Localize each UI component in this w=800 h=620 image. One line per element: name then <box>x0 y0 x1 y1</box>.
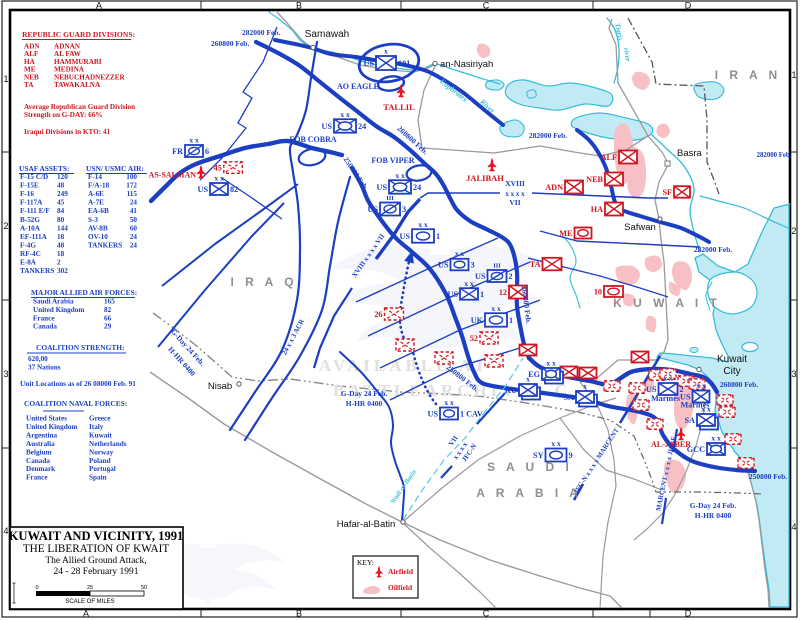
svg-text:x x: x x <box>395 171 405 180</box>
svg-text:249: 249 <box>57 190 68 198</box>
svg-text:282000 Feb.: 282000 Feb. <box>757 152 792 159</box>
svg-text:City: City <box>723 366 740 377</box>
svg-text:x x: x x <box>444 398 454 407</box>
svg-text:Strength on G-DAY: 66%: Strength on G-DAY: 66% <box>24 111 103 119</box>
svg-text:UK: UK <box>471 316 484 325</box>
svg-text:Hafar-al-Batin: Hafar-al-Batin <box>337 519 396 530</box>
svg-text:USAF ASSETS:: USAF ASSETS: <box>19 164 69 173</box>
svg-text:Spain: Spain <box>89 474 107 482</box>
svg-text:A R A B I A: A R A B I A <box>476 486 582 500</box>
svg-text:C: C <box>483 1 490 11</box>
svg-text:EF-111A: EF-111A <box>20 233 48 241</box>
svg-text:x x: x x <box>418 220 428 229</box>
svg-text:SCALE OF MILES: SCALE OF MILES <box>65 599 114 605</box>
svg-text:ADN: ADN <box>545 183 563 192</box>
svg-text:2: 2 <box>791 226 796 236</box>
svg-text:3: 3 <box>3 369 8 379</box>
svg-text:USN/ USMC AIR:: USN/ USMC AIR: <box>86 164 144 173</box>
svg-text:x x: x x <box>663 374 673 383</box>
svg-text:MAJOR ALLIED AIR FORCES:: MAJOR ALLIED AIR FORCES: <box>31 288 137 297</box>
svg-text:24: 24 <box>130 233 138 241</box>
svg-text:Argentina: Argentina <box>26 431 58 439</box>
svg-text:AS-SALMAN: AS-SALMAN <box>148 171 196 180</box>
svg-text:III: III <box>493 263 501 270</box>
svg-text:250800 Feb.: 250800 Feb. <box>749 472 787 481</box>
svg-text:66: 66 <box>104 314 112 322</box>
svg-text:1: 1 <box>480 290 484 299</box>
svg-text:24: 24 <box>130 199 138 207</box>
svg-text:ALF: ALF <box>601 153 617 162</box>
svg-text:0: 0 <box>35 585 38 591</box>
svg-text:FR: FR <box>172 147 183 156</box>
svg-text:50: 50 <box>130 216 138 224</box>
svg-text:260800 Feb.: 260800 Feb. <box>211 39 249 48</box>
svg-text:KU: KU <box>505 386 517 395</box>
svg-text:2: 2 <box>3 221 8 231</box>
svg-text:Samawah: Samawah <box>305 29 349 40</box>
svg-text:United Kingdom: United Kingdom <box>26 423 77 431</box>
svg-text:US: US <box>448 290 459 299</box>
svg-text:Canada: Canada <box>26 457 50 465</box>
svg-text:50: 50 <box>141 585 147 591</box>
svg-text:12: 12 <box>499 288 507 297</box>
svg-text:302: 302 <box>57 267 68 275</box>
svg-text:TANKERS: TANKERS <box>20 267 54 275</box>
svg-text:TA: TA <box>24 81 34 89</box>
svg-text:TA: TA <box>530 260 541 269</box>
svg-text:Kuwait: Kuwait <box>717 354 747 365</box>
svg-text:Greece: Greece <box>89 415 110 423</box>
svg-text:24 - 28 February 1991: 24 - 28 February 1991 <box>54 567 139 577</box>
svg-text:1: 1 <box>791 70 796 80</box>
svg-text:XVIII: XVIII <box>505 179 525 188</box>
svg-text:x: x <box>384 48 388 56</box>
svg-text:101: 101 <box>398 59 410 68</box>
svg-text:RF-4C: RF-4C <box>20 250 41 258</box>
svg-text:x x: x x <box>696 381 706 390</box>
svg-text:Basra: Basra <box>677 148 703 159</box>
svg-text:26: 26 <box>374 310 382 319</box>
svg-text:45: 45 <box>57 199 65 207</box>
svg-text:TAWAKALNA: TAWAKALNA <box>54 81 101 89</box>
svg-text:172: 172 <box>126 182 137 190</box>
svg-text:x x: x x <box>214 174 224 183</box>
svg-text:Unit Locations as of 26 08000: Unit Locations as of 26 08000 Feb. 91 <box>20 379 136 388</box>
svg-text:F-16: F-16 <box>20 190 34 198</box>
svg-text:1: 1 <box>3 74 8 84</box>
svg-text:F-15E: F-15E <box>20 182 39 190</box>
svg-text:Oilfield: Oilfield <box>388 583 413 592</box>
svg-text:D: D <box>685 1 692 11</box>
svg-text:Italy: Italy <box>89 423 104 431</box>
svg-text:48: 48 <box>57 241 65 249</box>
svg-text:282000 Feb.: 282000 Feb. <box>242 28 280 37</box>
svg-text:Belgium: Belgium <box>26 448 52 456</box>
svg-text:H-HR 0400: H-HR 0400 <box>695 511 732 520</box>
svg-text:80: 80 <box>57 216 65 224</box>
svg-text:A-10A: A-10A <box>20 224 41 232</box>
svg-text:x x x x: x x x x <box>505 190 525 198</box>
svg-text:48: 48 <box>57 182 65 190</box>
svg-text:OV-10: OV-10 <box>88 233 108 241</box>
svg-text:24: 24 <box>413 183 421 192</box>
svg-text:60: 60 <box>130 224 138 232</box>
svg-text:24: 24 <box>130 241 138 249</box>
svg-text:82: 82 <box>104 306 112 314</box>
svg-text:EG: EG <box>528 370 540 379</box>
svg-text:AO EAGLE: AO EAGLE <box>337 82 379 91</box>
svg-text:France: France <box>33 314 55 322</box>
svg-text:C: C <box>483 609 490 619</box>
svg-text:TANKERS: TANKERS <box>88 241 122 249</box>
svg-text:Portugal: Portugal <box>89 465 116 473</box>
svg-text:K U W A I T: K U W A I T <box>613 296 721 310</box>
svg-text:x: x <box>583 383 587 391</box>
svg-text:3: 3 <box>402 205 406 214</box>
svg-text:France: France <box>26 474 48 482</box>
svg-text:SA: SA <box>564 393 575 402</box>
svg-text:A: A <box>83 609 89 619</box>
svg-text:US: US <box>322 122 333 131</box>
svg-text:2: 2 <box>509 272 513 281</box>
svg-text:Nisab: Nisab <box>208 381 232 392</box>
svg-text:United States: United States <box>26 415 67 423</box>
svg-text:x x: x x <box>551 439 561 448</box>
svg-text:x x: x x <box>491 304 501 313</box>
svg-text:282000 Feb.: 282000 Feb. <box>694 245 732 254</box>
svg-text:REPUBLIC GUARD DIVISIONS:: REPUBLIC GUARD DIVISIONS: <box>22 30 135 39</box>
svg-text:x x: x x <box>464 279 474 288</box>
svg-text:KEY:: KEY: <box>357 558 374 567</box>
svg-text:Average Republican Guard Divis: Average Republican Guard Division <box>24 103 135 111</box>
svg-text:3: 3 <box>471 261 475 270</box>
svg-text:115: 115 <box>127 190 138 198</box>
svg-text:Airfield: Airfield <box>388 567 414 576</box>
svg-text:F/A-18: F/A-18 <box>88 182 110 190</box>
svg-text:SY: SY <box>533 451 544 460</box>
svg-text:G-Day 24 Feb.: G-Day 24 Feb. <box>690 501 737 510</box>
svg-text:10: 10 <box>594 288 602 297</box>
svg-text:III: III <box>386 195 394 202</box>
svg-text:NEB: NEB <box>586 175 603 184</box>
svg-text:Kuwait: Kuwait <box>89 431 112 439</box>
svg-text:x x: x x <box>189 136 199 145</box>
svg-text:G-Day 24 Feb.: G-Day 24 Feb. <box>341 389 388 398</box>
svg-text:Marines: Marines <box>651 394 680 403</box>
svg-text:COALITION STRENGTH:: COALITION STRENGTH: <box>36 343 125 352</box>
svg-text:52: 52 <box>470 334 478 343</box>
svg-text:an-Nasiriyah: an-Nasiriyah <box>440 59 493 70</box>
svg-text:24: 24 <box>358 122 366 131</box>
svg-text:The Allied Ground Attack,: The Allied Ground Attack, <box>45 556 146 566</box>
svg-text:x x: x x <box>711 434 721 443</box>
svg-text:260800 Feb.: 260800 Feb. <box>720 380 758 389</box>
svg-text:SA: SA <box>685 416 696 425</box>
svg-text:620,00: 620,00 <box>28 355 48 363</box>
svg-text:Iraqui Divisions in KTO: 41: Iraqui Divisions in KTO: 41 <box>24 128 111 136</box>
svg-text:84: 84 <box>57 207 65 215</box>
svg-text:Saudi Arabia: Saudi Arabia <box>33 298 74 306</box>
svg-text:18: 18 <box>57 233 65 241</box>
svg-text:AV-8B: AV-8B <box>88 224 108 232</box>
svg-text:Netherlands: Netherlands <box>89 440 127 448</box>
svg-text:B: B <box>296 609 302 619</box>
svg-text:US: US <box>364 59 375 68</box>
svg-text:Canada: Canada <box>33 323 57 331</box>
svg-text:Denmark: Denmark <box>26 465 55 473</box>
svg-text:9: 9 <box>569 451 573 460</box>
svg-text:B: B <box>296 1 302 11</box>
svg-text:165: 165 <box>104 298 115 306</box>
svg-text:37 Nations: 37 Nations <box>28 364 61 372</box>
svg-text:A-6E: A-6E <box>88 190 104 198</box>
svg-text:x x: x x <box>546 359 556 368</box>
svg-text:18: 18 <box>57 250 65 258</box>
svg-text:COALITION NAVAL FORCES:: COALITION NAVAL FORCES: <box>24 399 127 408</box>
svg-text:US: US <box>377 183 388 192</box>
svg-text:A-7E: A-7E <box>88 199 104 207</box>
svg-text:US: US <box>475 272 486 281</box>
svg-text:A: A <box>96 1 102 11</box>
svg-text:25: 25 <box>87 585 93 591</box>
svg-text:D: D <box>685 609 692 619</box>
svg-text:EA-6B: EA-6B <box>88 207 109 215</box>
svg-text:F-15 C/D: F-15 C/D <box>20 173 48 181</box>
svg-text:6: 6 <box>205 147 209 156</box>
svg-text:Safwan: Safwan <box>624 222 656 233</box>
svg-text:45: 45 <box>214 164 222 173</box>
svg-text:F-14: F-14 <box>88 173 102 181</box>
svg-text:ME: ME <box>559 229 573 238</box>
svg-text:US: US <box>438 261 449 270</box>
svg-text:x x: x x <box>340 110 350 119</box>
svg-text:Australia: Australia <box>26 440 55 448</box>
svg-text:I R A N: I R A N <box>715 68 781 82</box>
svg-text:I R A Q: I R A Q <box>230 275 297 289</box>
svg-text:120: 120 <box>57 173 68 181</box>
svg-text:F-117A: F-117A <box>20 199 43 207</box>
svg-text:144: 144 <box>57 224 68 232</box>
svg-text:100: 100 <box>126 173 137 181</box>
svg-text:x x: x x <box>701 405 711 414</box>
svg-text:29: 29 <box>104 323 112 331</box>
svg-text:United Kingdom: United Kingdom <box>33 306 84 314</box>
svg-text:HA: HA <box>591 205 603 214</box>
svg-text:F-4G: F-4G <box>20 241 36 249</box>
svg-text:VII: VII <box>509 198 520 207</box>
svg-text:S A U D I: S A U D I <box>487 460 573 474</box>
svg-text:US: US <box>646 385 657 394</box>
svg-text:THE LIBERATION OF KWAIT: THE LIBERATION OF KWAIT <box>23 543 170 555</box>
svg-text:2: 2 <box>57 259 61 267</box>
svg-text:Poland: Poland <box>89 457 111 465</box>
svg-text:41: 41 <box>130 207 138 215</box>
svg-text:F-111 E/F: F-111 E/F <box>20 207 50 215</box>
svg-text:US: US <box>400 232 411 241</box>
svg-text:1: 1 <box>509 316 513 325</box>
svg-text:282000 Feb.: 282000 Feb. <box>529 131 567 140</box>
svg-text:KUWAIT AND VICINITY, 1991: KUWAIT AND VICINITY, 1991 <box>9 529 184 543</box>
svg-text:US: US <box>198 185 209 194</box>
svg-text:1 CAV: 1 CAV <box>460 410 483 419</box>
svg-text:S-3: S-3 <box>88 216 98 224</box>
svg-text:TALLIL: TALLIL <box>383 102 415 112</box>
svg-text:82: 82 <box>230 185 238 194</box>
svg-text:US: US <box>368 205 379 214</box>
svg-text:1: 1 <box>436 232 440 241</box>
svg-text:B-52G: B-52G <box>20 216 40 224</box>
svg-text:E-8A: E-8A <box>20 259 37 267</box>
svg-text:US: US <box>428 410 439 419</box>
svg-text:Norway: Norway <box>89 448 114 456</box>
svg-text:JALIBAH: JALIBAH <box>466 173 504 183</box>
svg-text:x: x <box>526 376 530 384</box>
svg-text:FOB COBRA: FOB COBRA <box>289 135 337 144</box>
svg-text:SF: SF <box>662 188 672 197</box>
svg-text:4: 4 <box>791 522 796 532</box>
svg-text:3: 3 <box>791 369 796 379</box>
svg-text:FOB VIPER: FOB VIPER <box>371 156 414 165</box>
svg-text:H-HR 0400: H-HR 0400 <box>346 399 383 408</box>
svg-text:x x: x x <box>455 249 465 258</box>
